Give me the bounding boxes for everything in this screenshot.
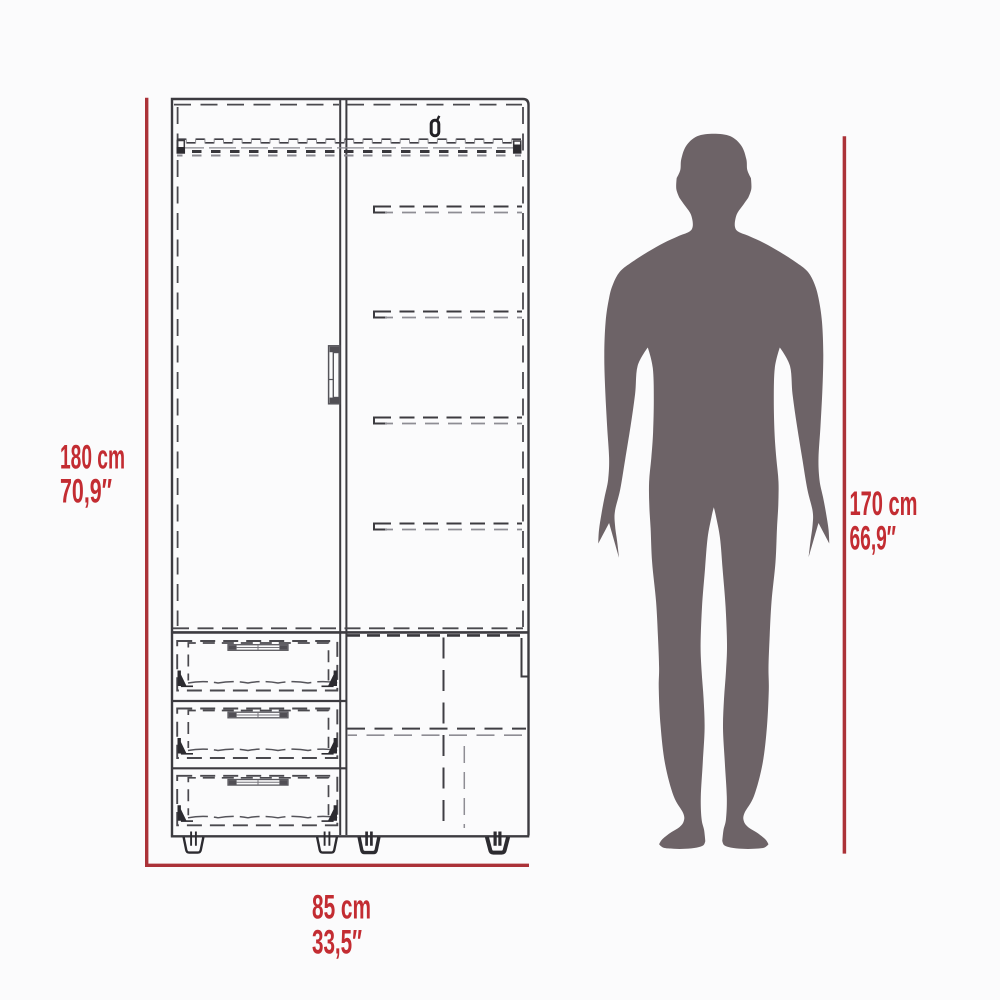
svg-text:170 cm: 170 cm [850, 485, 918, 523]
svg-text:70,9″: 70,9″ [60, 472, 112, 510]
svg-text:180 cm: 180 cm [60, 438, 125, 476]
svg-text:66,9″: 66,9″ [850, 519, 897, 557]
svg-text:85 cm: 85 cm [312, 888, 371, 926]
svg-text:33,5″: 33,5″ [312, 924, 362, 962]
